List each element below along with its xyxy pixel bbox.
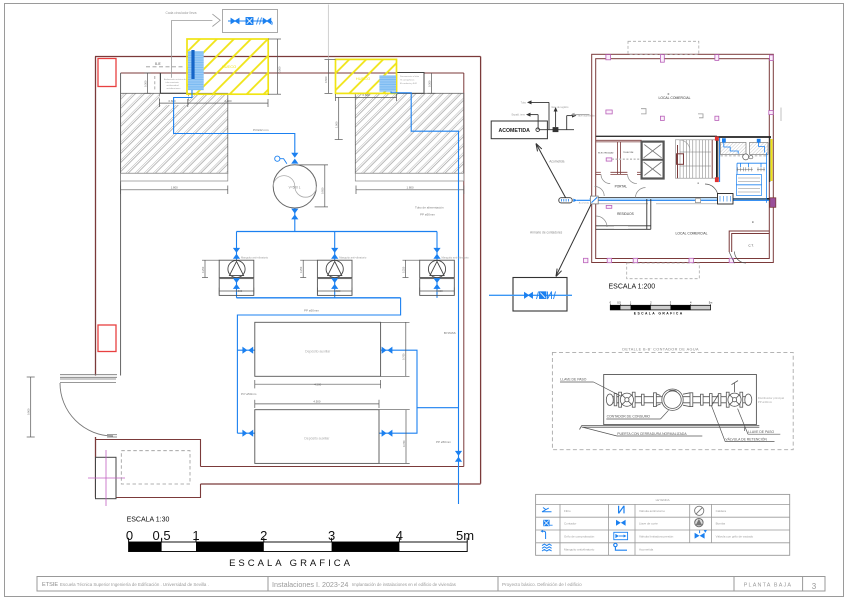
svg-text:0.300: 0.300 — [143, 80, 147, 87]
svg-text:Válvula limitadora presión: Válvula limitadora presión — [639, 535, 674, 539]
svg-text:0.250: 0.250 — [300, 266, 303, 273]
svg-text:76 compañeros: 76 compañeros — [400, 79, 414, 82]
svg-text:ESCALA 1:30: ESCALA 1:30 — [127, 517, 170, 524]
svg-text:0.5: 0.5 — [617, 301, 621, 305]
svg-text:Tubo de alimentación: Tubo de alimentación — [415, 206, 444, 210]
svg-text:Saneamiento el tubo: Saneamiento el tubo — [400, 75, 420, 78]
svg-text:Válvula antirretorno: Válvula antirretorno — [639, 509, 665, 513]
svg-text:LEYENDA: LEYENDA — [656, 498, 670, 502]
svg-text:0.760: 0.760 — [402, 440, 406, 447]
svg-text:Manguito anti-vibratorio: Manguito anti-vibratorio — [339, 256, 367, 260]
svg-text:5m: 5m — [456, 528, 474, 543]
svg-text:0.950: 0.950 — [321, 187, 325, 194]
svg-text:1: 1 — [630, 301, 632, 305]
svg-text:3: 3 — [812, 582, 817, 591]
svg-text:0: 0 — [126, 528, 133, 543]
svg-text:4.500: 4.500 — [314, 383, 321, 387]
svg-text:2.000: 2.000 — [225, 99, 232, 103]
svg-text:1.800: 1.800 — [171, 186, 178, 190]
svg-text:PP ø40mm: PP ø40mm — [758, 400, 773, 404]
svg-text:LOCAL COMERCIAL: LOCAL COMERCIAL — [675, 232, 707, 236]
svg-text:0.300: 0.300 — [427, 80, 431, 87]
svg-text:Depósito auxiliar: Depósito auxiliar — [305, 349, 331, 353]
svg-text:0.900: 0.900 — [27, 408, 31, 415]
svg-text:RESIDUOS: RESIDUOS — [617, 212, 634, 216]
svg-text:Bomba: Bomba — [716, 522, 726, 526]
svg-text:ACOMETIDA: ACOMETIDA — [499, 128, 531, 134]
svg-text:PP ø50mm: PP ø50mm — [420, 213, 435, 217]
svg-text:antivibraciones: antivibraciones — [167, 87, 181, 90]
svg-text:ETSIE: ETSIE — [42, 582, 58, 588]
svg-text:3: 3 — [670, 301, 672, 305]
svg-text:1.800: 1.800 — [407, 186, 414, 190]
svg-text:HUECO: HUECO — [222, 64, 236, 69]
svg-text:Aislamiento acústico del: Aislamiento acústico del — [164, 78, 187, 81]
svg-text:PP ø50mm: PP ø50mm — [304, 309, 319, 313]
svg-text:llave de registro: llave de registro — [552, 106, 570, 109]
svg-text:BY-PASS: BY-PASS — [444, 331, 456, 335]
svg-text:Contador: Contador — [564, 522, 576, 526]
svg-text:ESCALA 1:200: ESCALA 1:200 — [609, 284, 656, 291]
svg-text:4.500: 4.500 — [313, 400, 320, 404]
svg-text:Cada circulador lleva:: Cada circulador lleva: — [166, 11, 198, 15]
svg-text:PORTAL: PORTAL — [615, 185, 628, 189]
svg-text:Acometida: Acometida — [549, 160, 564, 164]
svg-text:HUECO: HUECO — [356, 76, 370, 81]
svg-text:Instalaciones I. 2023-24: Instalaciones I. 2023-24 — [272, 580, 348, 589]
svg-text:Espald. term: Espald. term — [512, 114, 525, 117]
svg-text:1.000: 1.000 — [335, 121, 339, 128]
svg-text:El conducto y B-B': El conducto y B-B' — [400, 82, 418, 85]
svg-text:LOCAL COMERCIAL: LOCAL COMERCIAL — [658, 96, 690, 100]
svg-text:LLAVE DE PASO: LLAVE DE PASO — [748, 430, 774, 434]
svg-text:V=500 L: V=500 L — [289, 186, 301, 190]
svg-text:0.500: 0.500 — [277, 66, 281, 73]
svg-text:Manguito anti-vibratorio: Manguito anti-vibratorio — [241, 256, 269, 260]
svg-text:CONTADOR DE CONSUMO: CONTADOR DE CONSUMO — [607, 415, 651, 419]
svg-text:0.600: 0.600 — [363, 93, 370, 97]
svg-text:Válvula con grifo de vaciado: Válvula con grifo de vaciado — [716, 535, 754, 539]
svg-text:C.T.: C.T. — [748, 243, 754, 247]
svg-text:Tubo: Tubo — [521, 101, 527, 104]
svg-text:ESCALA GRAFICA: ESCALA GRAFICA — [634, 312, 684, 316]
svg-text:llave acometida: llave acometida — [578, 115, 595, 118]
svg-text:Filtro: Filtro — [564, 509, 571, 513]
svg-text:5m: 5m — [709, 301, 713, 305]
svg-text:Depósito auxiliar: Depósito auxiliar — [304, 437, 330, 441]
svg-text:0.250: 0.250 — [403, 266, 406, 273]
svg-text:Acometida: Acometida — [639, 547, 654, 551]
svg-text:0.760: 0.760 — [402, 353, 406, 360]
svg-text:0.500: 0.500 — [236, 289, 243, 293]
svg-text:TELECOM: TELECOM — [623, 152, 633, 154]
svg-text:B-B': B-B' — [155, 62, 161, 66]
svg-text:4: 4 — [690, 301, 692, 305]
svg-text:0.250: 0.250 — [202, 266, 205, 273]
svg-text:PUERTA CON CERRADURA NORMAL: PUERTA CON CERRADURA NORMALIZADA — [617, 432, 687, 436]
svg-text:0.500: 0.500 — [334, 289, 341, 293]
svg-text:tubo montante: tubo montante — [166, 81, 180, 84]
svg-text:Proyecto básico. Definición de: Proyecto básico. Definición de l edifici… — [502, 582, 582, 587]
svg-text:Escuela Técnica Superior Ingen: Escuela Técnica Superior Ingeniería de E… — [60, 582, 209, 587]
svg-text:P.Pø32 mm: P.Pø32 mm — [253, 128, 269, 132]
svg-text:PLANTA BAJA: PLANTA BAJA — [744, 583, 792, 589]
svg-text:2: 2 — [650, 301, 652, 305]
svg-text:VÁLVULA DE RETENCIÓN: VÁLVULA DE RETENCIÓN — [725, 436, 767, 441]
svg-text:Grifo de comprobación: Grifo de comprobación — [564, 535, 595, 539]
svg-text:antihumedad: antihumedad — [167, 84, 180, 87]
svg-text:ELECTRICIDAD: ELECTRICIDAD — [598, 151, 614, 154]
svg-text:0: 0 — [610, 301, 612, 305]
svg-text:0.500: 0.500 — [436, 289, 443, 293]
svg-text:P.P ø50mm: P.P ø50mm — [241, 392, 257, 396]
svg-text:Manguito antivibratorio: Manguito antivibratorio — [564, 547, 595, 551]
svg-text:LLAVE DE PASO: LLAVE DE PASO — [560, 378, 586, 382]
svg-text:Caldera: Caldera — [716, 509, 727, 513]
svg-text:PP ø50mm: PP ø50mm — [436, 440, 451, 444]
svg-text:ESCALA GRAFICA: ESCALA GRAFICA — [229, 558, 353, 569]
svg-text:Manguito anti-vibratorio: Manguito anti-vibratorio — [442, 256, 470, 260]
svg-text:Llave de corte: Llave de corte — [639, 522, 658, 526]
svg-text:0.500: 0.500 — [324, 76, 328, 83]
svg-text:Acometida: Acometida — [579, 202, 590, 205]
svg-text:Armario de contadores: Armario de contadores — [530, 231, 563, 235]
svg-text:0.600: 0.600 — [169, 99, 176, 103]
svg-text:DETALLE B-B' CONTADOR DE AGUA: DETALLE B-B' CONTADOR DE AGUA — [622, 348, 699, 352]
svg-text:Implantación de instalaciones: Implantación de instalaciones en el edif… — [352, 582, 456, 587]
